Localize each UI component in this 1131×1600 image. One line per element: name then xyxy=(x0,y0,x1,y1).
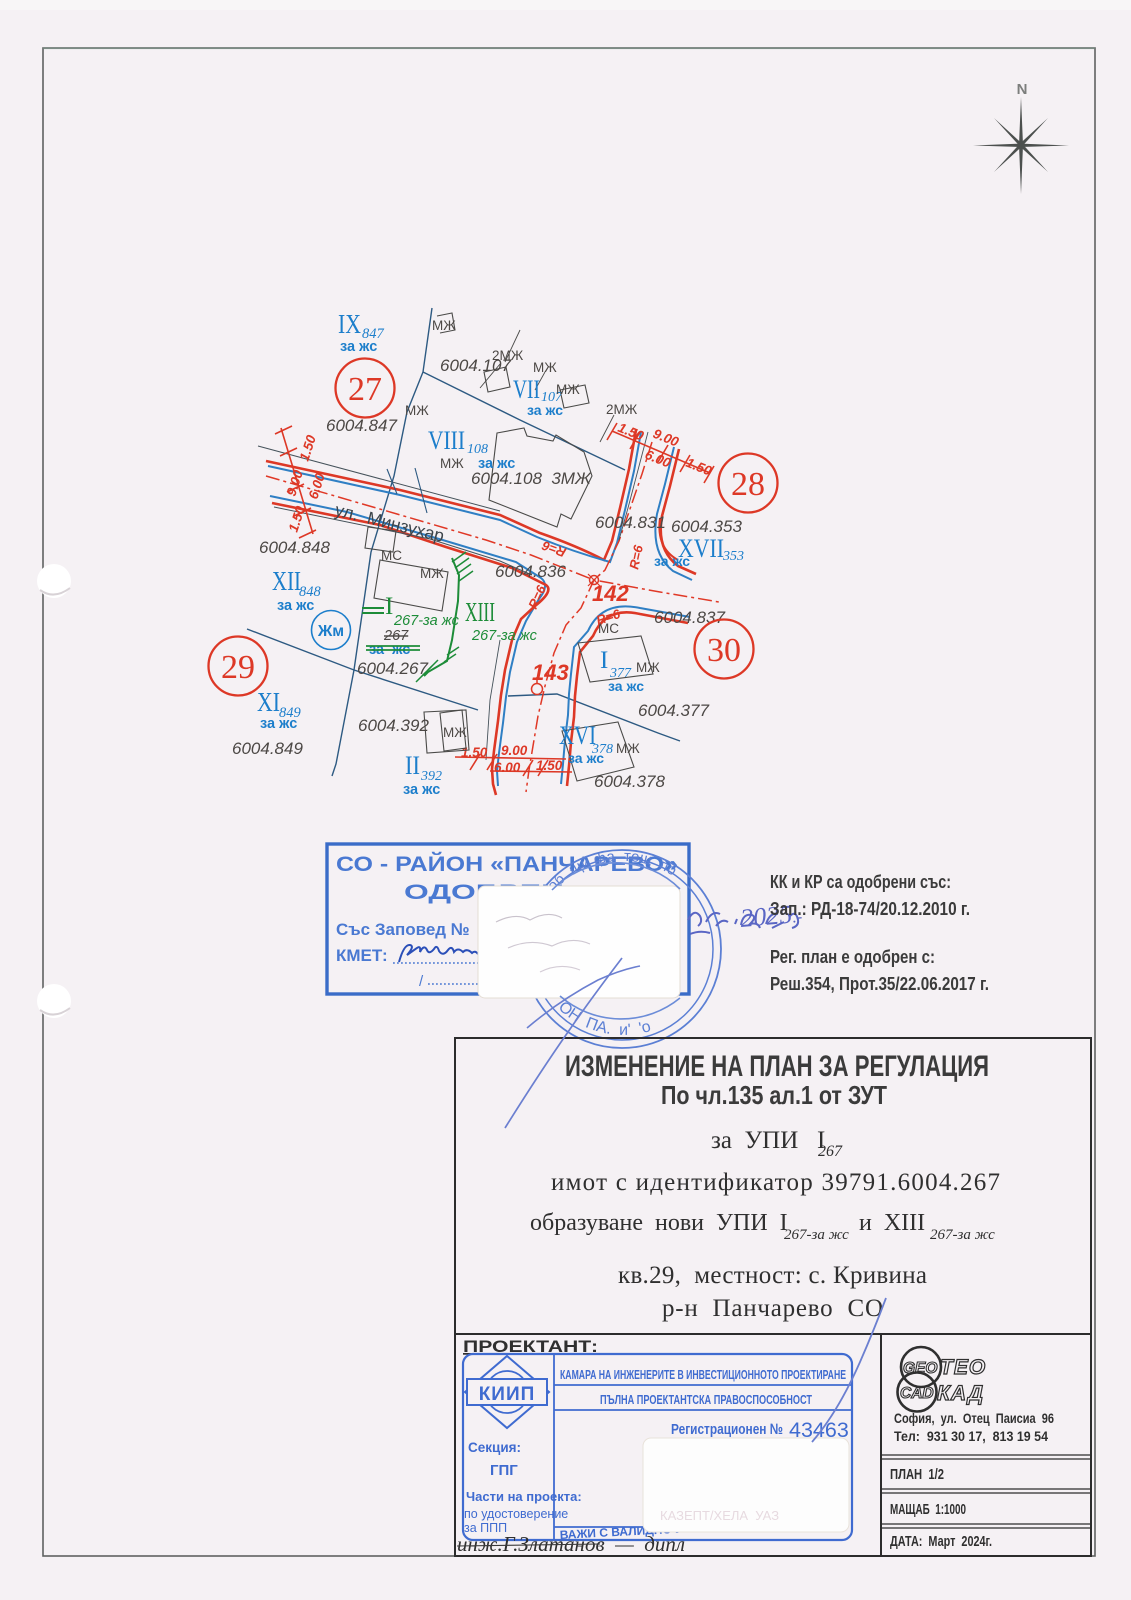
svg-text:6004.378: 6004.378 xyxy=(594,772,665,791)
svg-text:КМЕТ:: КМЕТ: xyxy=(336,946,388,965)
svg-text:2МЖ: 2МЖ xyxy=(606,402,638,417)
svg-text:267-за жс: 267-за жс xyxy=(471,628,538,644)
svg-text:МЖ: МЖ xyxy=(432,318,456,333)
svg-text:за жс: за жс xyxy=(403,782,440,798)
svg-text:за жс: за жс xyxy=(527,402,563,418)
svg-text:КИИП: КИИП xyxy=(479,1384,536,1405)
svg-text:VII: VII xyxy=(513,375,540,404)
svg-text:108: 108 xyxy=(467,442,488,457)
svg-text:6004.848: 6004.848 xyxy=(259,538,330,557)
svg-text:ГПГ: ГПГ xyxy=(490,1462,518,1479)
svg-text:6004.267: 6004.267 xyxy=(357,659,428,678)
svg-text:Регистрационен №: Регистрационен № xyxy=(671,1421,783,1438)
svg-text:образуване нови УПИ I: образуване нови УПИ I xyxy=(530,1210,788,1236)
svg-text:Рег. план е одобрен с:: Рег. план е одобрен с: xyxy=(770,947,935,967)
svg-text:за жс: за жс xyxy=(340,339,377,355)
svg-text:и XIII: и XIII xyxy=(853,1210,925,1236)
svg-text:CAD: CAD xyxy=(900,1385,934,1402)
svg-text:267: 267 xyxy=(818,1143,843,1160)
svg-text:за жс: за жс xyxy=(568,750,604,766)
svg-text:МЖ: МЖ xyxy=(443,725,467,740)
svg-text:Реш.354, Прот.35/22.06.2017 г.: Реш.354, Прот.35/22.06.2017 г. xyxy=(770,974,989,994)
svg-text:КК и КР са одобрени със:: КК и КР са одобрени със: xyxy=(770,872,951,892)
svg-text:29: 29 xyxy=(221,649,255,686)
svg-text:27: 27 xyxy=(348,371,382,408)
svg-text:353: 353 xyxy=(722,549,744,564)
svg-text:ТЕО: ТЕО xyxy=(940,1356,986,1379)
svg-text:30: 30 xyxy=(707,632,741,669)
svg-text:КАЗЕПТ/ХЕЛА УАЗ: КАЗЕПТ/ХЕЛА УАЗ xyxy=(660,1508,779,1523)
svg-text:МЖ: МЖ xyxy=(533,360,557,375)
svg-text:Секция:: Секция: xyxy=(468,1440,521,1455)
svg-text:IX: IX xyxy=(338,309,361,339)
svg-text:ИЗМЕНЕНИЕ НА ПЛАН ЗА РЕГУЛАЦИЯ: ИЗМЕНЕНИЕ НА ПЛАН ЗА РЕГУЛАЦИЯ xyxy=(565,1050,989,1083)
svg-text:МЖ: МЖ xyxy=(556,382,580,397)
svg-text:6004.108 3МЖ: 6004.108 3МЖ xyxy=(471,469,592,488)
svg-text:КАД: КАД xyxy=(937,1382,984,1405)
svg-text:МС: МС xyxy=(381,548,402,563)
svg-text:VIII: VIII xyxy=(428,426,465,455)
svg-text:Жм: Жм xyxy=(317,623,344,640)
svg-text:Части на проекта:: Части на проекта: xyxy=(466,1489,582,1504)
svg-text:МЖ: МЖ xyxy=(440,456,464,471)
svg-text:28: 28 xyxy=(731,466,765,503)
svg-text:XVI: XVI xyxy=(559,721,596,750)
svg-text:N: N xyxy=(1017,81,1028,98)
svg-text:ДАТА: Март 2024г.: ДАТА: Март 2024г. xyxy=(890,1534,992,1550)
svg-text:6004.831: 6004.831 xyxy=(595,513,666,532)
svg-text:КАМАРА НА ИНЖЕНЕРИТЕ В ИНВЕСТИ: КАМАРА НА ИНЖЕНЕРИТЕ В ИНВЕСТИЦИОННОТО П… xyxy=(560,1367,846,1382)
svg-text:1.50: 1.50 xyxy=(536,758,563,773)
svg-text:267-за жс: 267-за жс xyxy=(930,1227,995,1243)
svg-text:6004.377: 6004.377 xyxy=(638,701,709,720)
svg-text:МАЩАБ 1:1000: МАЩАБ 1:1000 xyxy=(890,1502,966,1518)
svg-text:МЖ: МЖ xyxy=(636,660,660,675)
svg-text:за жс: за жс xyxy=(277,598,314,614)
svg-text:6004.392: 6004.392 xyxy=(358,716,429,735)
svg-text:за жс: за жс xyxy=(260,716,297,732)
svg-text:Със Заповед №: Със Заповед № xyxy=(336,920,470,939)
svg-text:II: II xyxy=(405,751,420,780)
svg-text:МЖ: МЖ xyxy=(616,741,640,756)
svg-text:6004.837: 6004.837 xyxy=(654,608,725,627)
svg-text:ПЛАН 1/2: ПЛАН 1/2 xyxy=(890,1467,944,1483)
svg-text:кв.29, местност: с. Кривина: кв.29, местност: с. Кривина xyxy=(618,1262,927,1289)
svg-text:1.50: 1.50 xyxy=(461,745,488,760)
svg-text:Тел: 931 30 17, 813 19 54: Тел: 931 30 17, 813 19 54 xyxy=(894,1429,1048,1444)
svg-text:6.00: 6.00 xyxy=(494,760,521,775)
svg-text:София, ул. Отец Паисиа 96: София, ул. Отец Паисиа 96 xyxy=(894,1411,1054,1426)
svg-text:имот с идентификатор 39791.600: имот с идентификатор 39791.6004.267 xyxy=(551,1169,1000,1196)
svg-text:р-н Панчарево СО: р-н Панчарево СО xyxy=(662,1295,883,1322)
svg-text:ПЪЛНА ПРОЕКТАНТСКА ПРАВОСПОСОБ: ПЪЛНА ПРОЕКТАНТСКА ПРАВОСПОСОБНОСТ xyxy=(600,1392,812,1407)
svg-text:МЖ: МЖ xyxy=(420,566,444,581)
svg-text:за жс: за жс xyxy=(654,553,690,569)
svg-text:Зап.: РД-18-74/20.12.2010 г.: Зап.: РД-18-74/20.12.2010 г. xyxy=(770,899,970,919)
svg-text:267-за жс: 267-за жс xyxy=(784,1227,849,1243)
svg-text:МЖ: МЖ xyxy=(405,403,429,418)
svg-text:за жс: за жс xyxy=(608,678,644,694)
svg-text:267-за жс: 267-за жс xyxy=(393,613,460,629)
svg-text:по удостоверение: по удостоверение xyxy=(464,1507,568,1521)
svg-text:2МЖ: 2МЖ xyxy=(492,348,524,363)
svg-text:XIII: XIII xyxy=(465,597,495,627)
svg-text:6004.836: 6004.836 xyxy=(495,562,566,581)
svg-text:По чл.135 ал.1 от ЗУТ: По чл.135 ал.1 от ЗУТ xyxy=(661,1080,887,1110)
svg-text:XII: XII xyxy=(272,566,301,596)
svg-text:XI: XI xyxy=(257,687,280,717)
svg-text:142: 142 xyxy=(592,581,629,606)
svg-text:9.00: 9.00 xyxy=(501,743,528,758)
svg-text:I: I xyxy=(385,593,393,620)
svg-text:I: I xyxy=(600,647,608,674)
svg-text:6004.847: 6004.847 xyxy=(326,416,397,435)
svg-text:за УПИ I: за УПИ I xyxy=(711,1127,825,1154)
svg-text:6004.849: 6004.849 xyxy=(232,739,303,758)
